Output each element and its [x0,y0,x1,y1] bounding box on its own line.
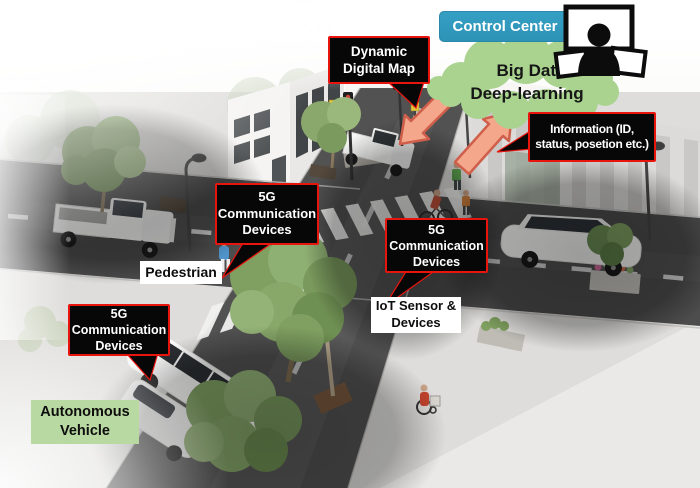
right5g-line-2: Communication [387,238,486,254]
autonomous-vehicle-label: Autonomous Vehicle [31,400,139,444]
iot-line-2: Devices [371,315,461,332]
autonomous-line-1: Autonomous [31,403,139,422]
cloud-line-2: Deep-learning [470,84,583,103]
bottom5g-line-3: Devices [70,338,168,354]
info-line-2: status, posetion etc.) [530,137,654,152]
bottom5g-line-1: 5G [70,306,168,322]
iot-sensor-devices-label: IoT Sensor & Devices [371,297,461,333]
map-line-1: Dynamic [330,43,428,60]
control-center-label: Control Center [439,11,571,42]
right5g-line-1: 5G [387,222,486,238]
mid5g-line-1: 5G [217,189,317,206]
callout-dynamic-digital-map: Dynamic Digital Map [328,36,430,84]
callout-information: Information (ID, status, posetion etc.) [528,112,656,162]
mid5g-line-2: Communication [217,206,317,223]
right5g-line-3: Devices [387,254,486,270]
callout-5g-intersection: 5G Communication Devices [385,218,488,273]
mid5g-line-3: Devices [217,222,317,239]
autonomous-line-2: Vehicle [31,422,139,441]
fade-left [0,80,70,340]
operator-at-monitors-icon [553,4,649,80]
diagram-stage: Big Data Deep-learning Control Center Dy… [0,0,700,488]
pedestrian-label: Pedestrian [140,261,222,284]
callout-5g-pedestrian: 5G Communication Devices [215,183,319,245]
pedestrian-label-text: Pedestrian [140,263,222,281]
bottom5g-line-2: Communication [70,322,168,338]
iot-line-1: IoT Sensor & [371,298,461,315]
info-line-1: Information (ID, [530,122,654,137]
map-line-2: Digital Map [330,60,428,77]
callout-5g-vehicle: 5G Communication Devices [68,304,170,356]
